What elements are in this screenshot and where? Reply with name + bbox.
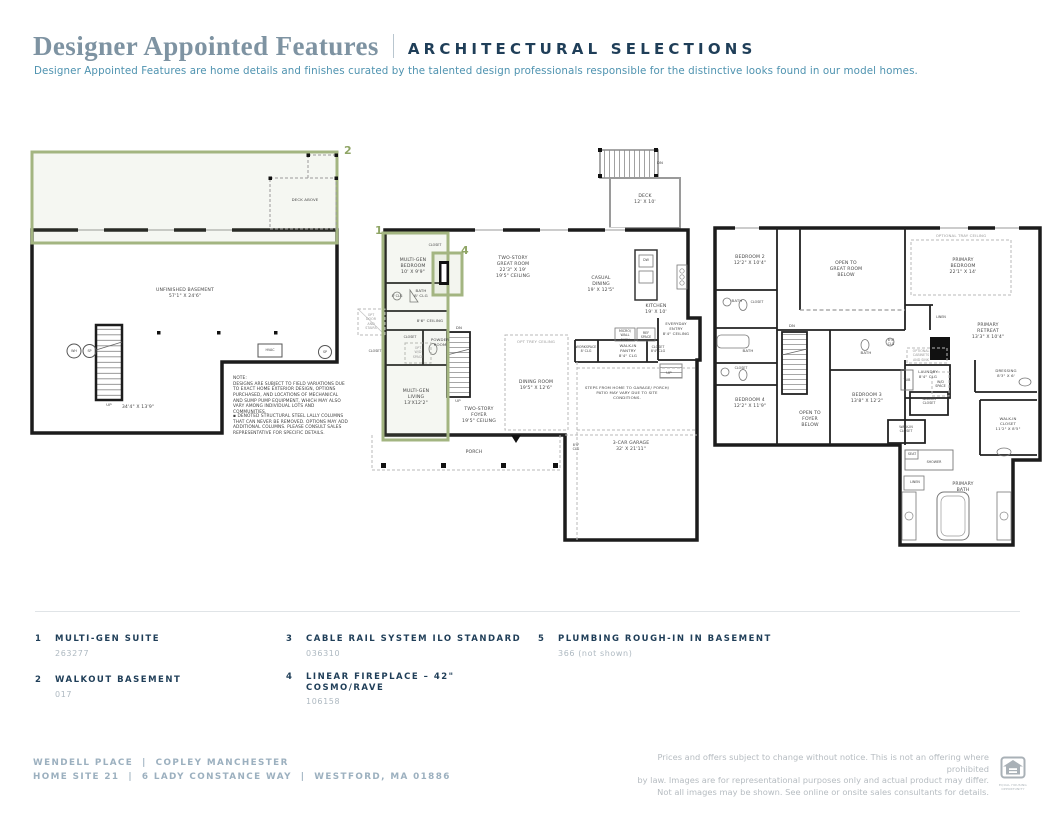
label-deck: DECK 12' X 10' <box>615 194 675 206</box>
label-wall-oven: MICRO/ WALL OVEN <box>615 329 635 342</box>
legend-code: 366 (not shown) <box>558 649 772 658</box>
legend-item-5: 5 PLUMBING ROUGH-IN IN BASEMENT 366 (not… <box>538 634 772 658</box>
label-primary-bedroom: PRIMARY BEDROOM 22'1" X 14' <box>928 258 998 276</box>
legend-number: 5 <box>538 634 558 658</box>
page-title: Designer Appointed Features <box>33 33 379 60</box>
label-multigen-living: MULTI-GEN LIVING 13'X12'2" <box>386 389 446 407</box>
label-wic-right: WALK-IN CLOSET 11'2" X 8'5" <box>983 416 1033 431</box>
legend-code: 036310 <box>306 649 521 658</box>
label-steps-note: STEPS FROM HOME TO GARAGE/ PORCH/ PATIO … <box>577 385 677 400</box>
label-great-room: TWO-STORY GREAT ROOM 22'3" X 19' 19'5" C… <box>478 256 548 280</box>
label-kitchen: KITCHEN 19' X 10' <box>626 304 686 316</box>
label-closet: CLOSET <box>421 243 449 247</box>
stairs-2f <box>782 332 807 394</box>
marker-walkout-basement: 2 <box>344 144 352 157</box>
equal-housing-icon <box>1000 756 1026 779</box>
label-dn-stairs: DN <box>450 325 468 330</box>
label-dining-room: DINING ROOM 19'5" X 12'6" <box>501 380 571 392</box>
equal-housing-caption: EQUAL HOUSING OPPORTUNITY <box>999 784 1027 791</box>
label-bath-mid: BATH <box>733 348 763 353</box>
legend-number: 4 <box>286 672 306 706</box>
legend-item-1: 1 MULTI-GEN SUITE 263277 <box>35 634 160 658</box>
label-bath: BATH 8' CLG <box>406 288 436 298</box>
label-multigen-bedroom: MULTI-GEN BEDROOM 10' X 9'9" <box>383 258 443 276</box>
legend-number: 3 <box>286 634 306 658</box>
site-line: HOME SITE 21 | 6 LADY CONSTANCE WAY | WE… <box>33 772 451 782</box>
label-opt-trey: OPT TREY CEILING <box>501 339 571 344</box>
label-everyday-entry: EVERYDAY ENTRY 8'4" CEILING <box>651 321 701 336</box>
label-optional-tray: OPTIONAL TRAY CEILING <box>916 233 1006 238</box>
label-dn-deck: DN <box>652 160 668 165</box>
label-closet-entry: CLOSET 8'4" CLG <box>643 345 673 354</box>
label-sp-right: SP <box>319 350 331 354</box>
legend-item-3: 3 CABLE RAIL SYSTEM ILO STANDARD 036310 <box>286 634 521 658</box>
label-dressing: DRESSING 8'3" X 6' <box>978 368 1034 378</box>
legend-code: 017 <box>55 690 181 699</box>
marker-multi-gen-suite: 1 <box>375 224 383 237</box>
basement-plan: 2 DECK ABOVE UNFINISHED BASEMENT 57'1" X… <box>30 143 360 443</box>
label-ref-space: REF SPACE <box>637 331 655 340</box>
label-8clg: 8' CLG <box>388 294 406 298</box>
page-subtitle: ARCHITECTURAL SELECTIONS <box>408 42 757 57</box>
label-open-foyer: OPEN TO FOYER BELOW <box>785 411 835 429</box>
label-dn-2f: DN <box>782 323 802 328</box>
first-floor-plan: 1 4 MULTI-GEN BEDROOM 10' X 9'9" CLOSET … <box>355 143 705 563</box>
label-bath-right: BATH <box>851 350 881 355</box>
label-up-entry: UP <box>661 370 677 375</box>
second-floor-plan: BEDROOM 2 12'2" X 10'4" OPEN TO GREAT RO… <box>705 220 1055 550</box>
label-tub: TUB <box>901 378 913 382</box>
label-hvac: HVAC <box>258 348 282 352</box>
second-floor-plan-drawing <box>705 220 1055 550</box>
legend-code: 106158 <box>306 697 455 706</box>
disclaimer: Prices and offers subject to change with… <box>629 752 989 798</box>
label-foyer: TWO-STORY FOYER 19'5" CEILING <box>449 407 509 425</box>
label-casual-dining: CASUAL DINING 19' X 12'5" <box>571 276 631 294</box>
legend-title: LINEAR FIREPLACE – 42" COSMO/RAVE <box>306 672 455 693</box>
label-porch: PORCH <box>444 450 504 456</box>
label-primary-bath: PRIMARY BATH <box>933 482 993 494</box>
legend-number: 1 <box>35 634 55 658</box>
label-shower: SHOWER <box>921 460 947 464</box>
legend-title: CABLE RAIL SYSTEM ILO STANDARD <box>306 634 521 645</box>
label-wic-left: WALK-IN CLOSET <box>891 425 921 434</box>
header: Designer Appointed Features ARCHITECTURA… <box>33 33 757 60</box>
label-sp-left: SP <box>84 349 96 353</box>
label-garage-clg: 8'4" CLG <box>568 443 584 452</box>
front-door-mark <box>511 435 521 443</box>
label-unfinished-basement: UNFINISHED BASEMENT 57'1" X 24'6" <box>130 288 240 300</box>
label-wh: WH <box>68 349 80 353</box>
community-line: WENDELL PLACE | COPLEY MANCHESTER <box>33 758 289 768</box>
label-86-ceiling: 8'6" CEILING <box>405 318 455 323</box>
legend-title: PLUMBING ROUGH-IN IN BASEMENT <box>558 634 772 645</box>
label-linen2: LINEN <box>905 480 925 484</box>
label-wd-space: W/D SPACE <box>933 380 948 389</box>
title-divider <box>393 34 394 58</box>
legend-title: WALKOUT BASEMENT <box>55 675 181 686</box>
tagline: Designer Appointed Features are home det… <box>34 65 918 77</box>
label-dw: DW <box>639 258 653 262</box>
label-opt-cabinets: OPTIONAL CABINETS AND SINK <box>907 349 935 362</box>
label-open-great-room: OPEN TO GREAT ROOM BELOW <box>816 261 876 279</box>
legend-code: 263277 <box>55 649 160 658</box>
label-bedroom4: BEDROOM 4 12'2" X 11'9" <box>715 398 785 410</box>
label-seat: SEAT <box>904 452 920 456</box>
label-basement-dim: 34'4" X 13'9" <box>108 405 168 411</box>
legend-item-4: 4 LINEAR FIREPLACE – 42" COSMO/RAVE 1061… <box>286 672 455 706</box>
label-primary-retreat: PRIMARY RETREAT 13'3" X 10'4" <box>958 323 1018 341</box>
label-opt-door-stairs: OPT DOOR AND STAIRS <box>359 313 383 330</box>
label-laundry: LAUNDRY 8'4" CLG <box>908 369 948 379</box>
label-closet-left: CLOSET <box>362 349 388 353</box>
basement-note: NOTE: DESIGNS ARE SUBJECT TO FIELD VARIA… <box>233 376 348 416</box>
label-opt-wd: OPT W/D SPACE <box>407 346 429 359</box>
deck-stairs <box>600 150 658 178</box>
basement-stairs <box>96 325 122 400</box>
legend-number: 2 <box>35 675 55 699</box>
basement-note-2: ▪ DENOTED STRUCTURAL STEEL LALLY COLUMNS… <box>233 414 348 437</box>
label-up-stairs: UP <box>449 398 467 403</box>
label-bedroom2: BEDROOM 2 12'2" X 10'4" <box>715 255 785 267</box>
label-closet-upper: CLOSET <box>745 300 769 304</box>
legend-divider <box>35 611 1020 612</box>
label-wic-small: WALK-IN CLOSET <box>914 397 944 406</box>
label-linen: LINEN <box>926 315 956 319</box>
legend-item-2: 2 WALKOUT BASEMENT 017 <box>35 675 181 699</box>
label-closet-mid-2f: CLOSET <box>727 366 755 370</box>
legend-title: MULTI-GEN SUITE <box>55 634 160 645</box>
label-deck-above: DECK ABOVE <box>270 197 340 202</box>
flyer-page: Designer Appointed Features ARCHITECTURA… <box>0 0 1055 815</box>
label-bedroom3: BEDROOM 3 13'8" X 12'2" <box>832 393 902 405</box>
label-garage: 3-CAR GARAGE 32' X 21'11" <box>591 441 671 453</box>
label-84clg: 8'4" CLG <box>883 338 899 347</box>
marker-linear-fireplace: 4 <box>461 244 469 257</box>
equal-housing-logo: EQUAL HOUSING OPPORTUNITY <box>999 756 1027 791</box>
